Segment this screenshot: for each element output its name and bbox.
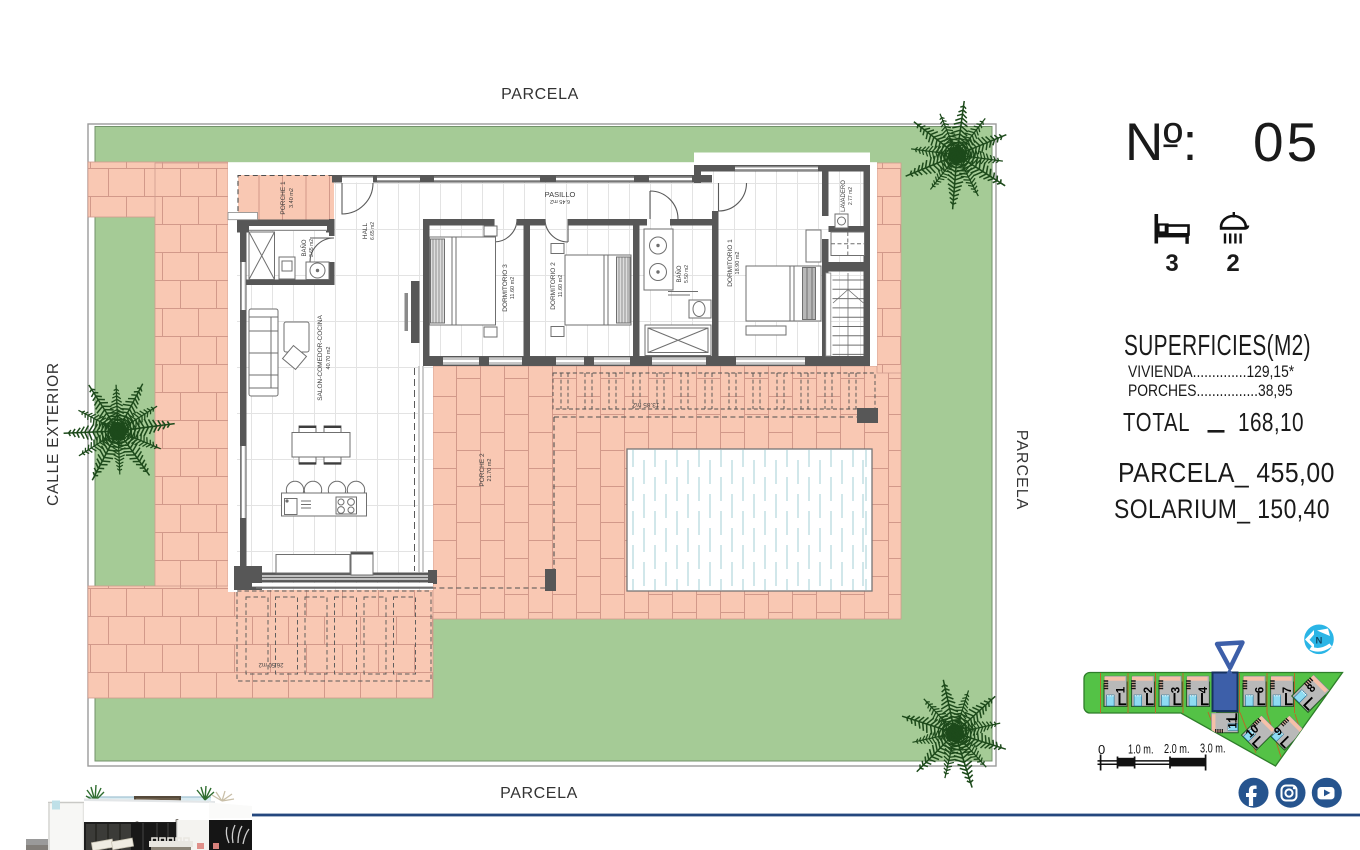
svg-text:DORMITORIO 2: DORMITORIO 2 bbox=[550, 262, 557, 310]
svg-text:2.0 m.: 2.0 m. bbox=[1164, 741, 1190, 756]
svg-text:PARCELA: PARCELA bbox=[501, 86, 579, 103]
svg-text:6.45 m2: 6.45 m2 bbox=[550, 198, 570, 204]
svg-text:3: 3 bbox=[1171, 687, 1183, 693]
svg-text:PARCELA_ 455,00: PARCELA_ 455,00 bbox=[1118, 457, 1335, 489]
svg-text:PASILLO: PASILLO bbox=[545, 190, 576, 199]
svg-text:21.70 m2: 21.70 m2 bbox=[487, 459, 493, 482]
svg-text:SUPERFICIES(M2): SUPERFICIES(M2) bbox=[1124, 330, 1311, 362]
svg-text:13.85 m2: 13.85 m2 bbox=[632, 401, 659, 408]
svg-text:11.60 m2: 11.60 m2 bbox=[558, 275, 564, 298]
svg-text:2: 2 bbox=[1143, 687, 1155, 693]
svg-text:PORCHE 2: PORCHE 2 bbox=[479, 453, 486, 487]
svg-text:40.70 m2: 40.70 m2 bbox=[326, 347, 332, 370]
svg-text:3.40 m2: 3.40 m2 bbox=[289, 188, 295, 208]
svg-text:05: 05 bbox=[1253, 111, 1320, 173]
svg-text:3: 3 bbox=[1165, 250, 1178, 277]
svg-text:N: N bbox=[1316, 636, 1323, 647]
svg-text:18.90 m2: 18.90 m2 bbox=[735, 252, 741, 275]
svg-text:0: 0 bbox=[1098, 742, 1105, 757]
svg-text:3.0 m.: 3.0 m. bbox=[1200, 741, 1226, 756]
svg-text:PORCHES................38,95: PORCHES................38,95 bbox=[1128, 382, 1293, 400]
svg-text:DORMITORIO 3: DORMITORIO 3 bbox=[502, 264, 509, 312]
svg-text:Nº:: Nº: bbox=[1125, 113, 1197, 172]
svg-text:HALL: HALL bbox=[362, 222, 369, 239]
svg-text:26.50 m2: 26.50 m2 bbox=[258, 661, 284, 667]
svg-text:SALON-COMEDOR-COCINA: SALON-COMEDOR-COCINA bbox=[317, 315, 324, 401]
svg-text:CALLE EXTERIOR: CALLE EXTERIOR bbox=[45, 362, 62, 506]
svg-text:PARCELA: PARCELA bbox=[500, 785, 578, 802]
svg-text:PARCELA: PARCELA bbox=[1013, 430, 1030, 511]
svg-text:3.65 m2: 3.65 m2 bbox=[309, 239, 315, 257]
svg-text:2.77 m2: 2.77 m2 bbox=[848, 187, 854, 205]
svg-text:2: 2 bbox=[1226, 250, 1239, 277]
svg-text:BAÑO: BAÑO bbox=[301, 239, 308, 256]
svg-text:1.0 m.: 1.0 m. bbox=[1128, 742, 1154, 757]
svg-text:11.60 m2: 11.60 m2 bbox=[510, 277, 516, 300]
svg-text:168,10: 168,10 bbox=[1238, 408, 1304, 437]
svg-text:PORCHE 1: PORCHE 1 bbox=[280, 181, 287, 215]
svg-text:DORMITORIO 1: DORMITORIO 1 bbox=[727, 239, 734, 287]
svg-text:11: 11 bbox=[1228, 716, 1240, 729]
svg-text:6: 6 bbox=[1255, 687, 1267, 693]
svg-text:5.50 m2: 5.50 m2 bbox=[684, 265, 690, 283]
svg-text:BAÑO: BAÑO bbox=[676, 265, 683, 282]
svg-text:4: 4 bbox=[1198, 686, 1210, 693]
svg-text:VIVIENDA..............129,15*: VIVIENDA..............129,15* bbox=[1128, 363, 1294, 381]
svg-text:1: 1 bbox=[1116, 686, 1128, 693]
svg-text:7: 7 bbox=[1282, 687, 1294, 693]
svg-text:6.65 m2: 6.65 m2 bbox=[370, 222, 376, 240]
svg-text:SOLARIUM_ 150,40: SOLARIUM_ 150,40 bbox=[1114, 494, 1330, 524]
svg-text:LAVADERO: LAVADERO bbox=[841, 180, 847, 212]
svg-text:TOTAL: TOTAL bbox=[1123, 408, 1190, 437]
